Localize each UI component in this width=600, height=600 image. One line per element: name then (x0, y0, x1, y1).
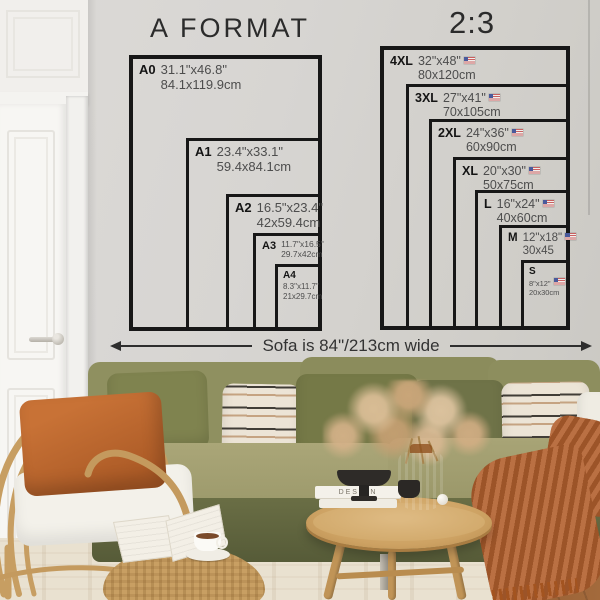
size-label-2xl: 2XL 24"x36" 60x90cm (432, 122, 567, 155)
size-dims: 8.3"x11.7" 21x29.7cm (283, 282, 322, 300)
inches-text: 24"x36" (466, 126, 509, 140)
size-inches: 16"x24" (497, 197, 554, 211)
sofa-width-label: Sofa is 84"/213cm wide (252, 336, 449, 356)
us-flag-icon (464, 57, 475, 64)
us-flag-icon (565, 233, 576, 240)
size-label-a1: A1 23.4"x33.1" 59.4x84.1cm (189, 141, 319, 175)
size-inches: 32"x48" (418, 54, 476, 68)
size-dims: 11.7"x16.5" 29.7x42cm (281, 240, 324, 259)
size-cm: 60x90cm (466, 140, 523, 154)
book-spine-title: DESIGN (339, 489, 378, 496)
size-label-a0: A0 31.1"x46.8" 84.1x119.9cm (133, 59, 318, 93)
size-inches: 31.1"x46.8" (161, 63, 242, 78)
size-label-xl: XL 20"x30" 50x75cm (456, 160, 567, 193)
size-inches: 27"x41" (443, 91, 501, 105)
size-inches: 8.3"x11.7" (283, 282, 322, 291)
us-flag-icon (543, 200, 554, 207)
a-format-chart: A0 31.1"x46.8" 84.1x119.9cm A1 23.4"x33.… (129, 55, 322, 331)
size-label-a4: A4 8.3"x11.7" 21x29.7cm (278, 267, 319, 301)
size-dims: 27"x41" 70x105cm (443, 91, 501, 120)
size-inches: 16.5"x23.4" (257, 201, 323, 216)
sofa-width-arrow: Sofa is 84"/213cm wide (112, 336, 590, 356)
size-code: 3XL (415, 91, 438, 105)
size-code: A2 (235, 201, 252, 216)
wall-paneling-upper (0, 0, 88, 92)
arrow-right-icon (450, 345, 590, 347)
door-handle-rosette (52, 333, 64, 345)
poster-size-guide-image: A FORMAT A0 31.1"x46.8" 84.1x119.9cm A1 … (0, 0, 600, 600)
size-cm: 40x60cm (497, 211, 554, 225)
size-inches: 12"x18" (523, 232, 577, 245)
size-cm: 42x59.4cm (257, 216, 323, 231)
size-inches: 20"x30" (483, 164, 540, 178)
size-cm: 20x30cm (529, 289, 565, 298)
size-dims: 31.1"x46.8" 84.1x119.9cm (161, 63, 242, 93)
size-code: 4XL (390, 54, 413, 68)
inches-text: 12"x18" (523, 232, 563, 244)
ratio-chart: 4XL 32"x48" 80x120cm 3XL 27"x41" 70x105c… (380, 46, 570, 330)
size-dims: 16"x24" 40x60cm (497, 197, 554, 226)
arrow-left-icon (112, 345, 252, 347)
size-label-3xl: 3XL 27"x41" 70x105cm (409, 87, 567, 120)
size-label-s: S 8"x12" 20x30cm (524, 263, 567, 297)
black-pedestal-bowl (337, 470, 391, 486)
inches-text: 20"x30" (483, 164, 526, 178)
size-code: A3 (262, 240, 276, 253)
size-label-l: L 16"x24" 40x60cm (478, 193, 567, 226)
inches-text: 27"x41" (443, 91, 486, 105)
size-cm: 70x105cm (443, 105, 501, 119)
size-code: A1 (195, 145, 212, 160)
inches-text: 16"x24" (497, 197, 540, 211)
size-code: M (508, 232, 518, 245)
size-cm: 84.1x119.9cm (161, 78, 242, 93)
inches-text: 32"x48" (418, 54, 461, 68)
wall-corner-line (588, 0, 590, 215)
size-label-a2: A2 16.5"x23.4" 42x59.4cm (229, 197, 319, 231)
size-box-a4: A4 8.3"x11.7" 21x29.7cm (275, 264, 322, 331)
size-cm: 30x45 (523, 245, 577, 258)
size-label-m: M 12"x18" 30x45 (502, 228, 567, 258)
size-box-s: S 8"x12" 20x30cm (521, 260, 570, 330)
ratio-title: 2:3 (449, 5, 495, 41)
size-dims: 32"x48" 80x120cm (418, 54, 476, 83)
us-flag-icon (529, 167, 540, 174)
black-cup (398, 480, 420, 498)
size-code: 2XL (438, 126, 461, 140)
size-code: A4 (283, 270, 296, 281)
us-flag-icon (554, 278, 565, 285)
size-dims: 23.4"x33.1" 59.4x84.1cm (217, 145, 291, 175)
size-code: L (484, 197, 492, 211)
size-cm: 29.7x42cm (281, 250, 324, 260)
a-format-title: A FORMAT (150, 13, 310, 44)
size-label-a3: A3 11.7"x16.5" 29.7x42cm (256, 236, 319, 259)
size-dims: 12"x18" 30x45 (523, 232, 577, 258)
size-cm: 21x29.7cm (283, 292, 322, 301)
coffee-cup (194, 532, 221, 551)
size-cm: 59.4x84.1cm (217, 160, 291, 175)
size-cm: 80x120cm (418, 68, 476, 82)
us-flag-icon (489, 94, 500, 101)
decor-ball (437, 494, 448, 505)
door-panel-upper (7, 130, 55, 360)
size-label-4xl: 4XL 32"x48" 80x120cm (384, 50, 566, 83)
size-dims: 16.5"x23.4" 42x59.4cm (257, 201, 323, 231)
wall-molding (6, 10, 80, 78)
size-dims: 20"x30" 50x75cm (483, 164, 540, 193)
size-code: S (529, 266, 536, 277)
size-dims: 24"x36" 60x90cm (466, 126, 523, 155)
us-flag-icon (512, 129, 523, 136)
size-inches: 24"x36" (466, 126, 523, 140)
size-dims: 8"x12" 20x30cm (529, 278, 565, 297)
size-inches: 23.4"x33.1" (217, 145, 291, 160)
size-code: A0 (139, 63, 156, 78)
size-code: XL (462, 164, 478, 178)
